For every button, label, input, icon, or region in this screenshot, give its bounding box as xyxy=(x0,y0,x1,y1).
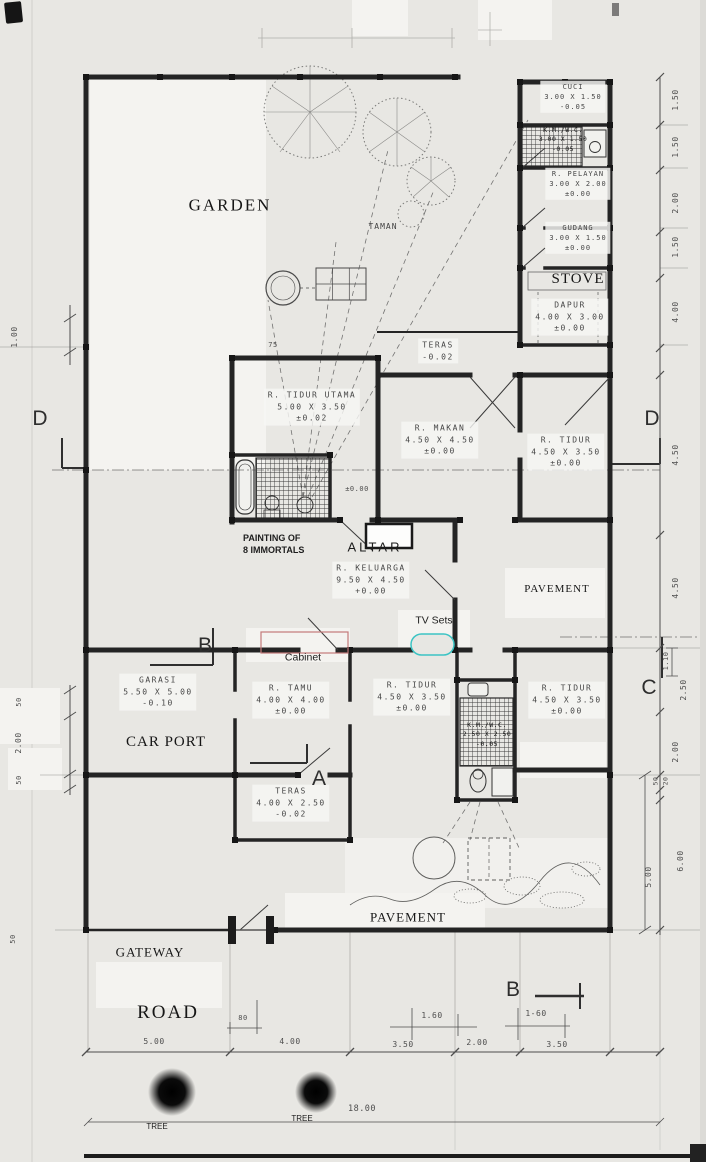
room-label-cuci: CUCI 3.00 X 1.50 -0.05 xyxy=(540,81,605,113)
dim-left-50-b: 50 xyxy=(14,775,24,784)
floor-plan-scan: CUCI 3.00 X 1.50 -0.05 K.M./W.C. 3.00 X … xyxy=(0,0,706,1162)
cabinet-label: Cabinet xyxy=(285,650,321,665)
dim-right-1-10: 1.10 xyxy=(661,652,671,671)
room-size: 5.00 X 3.50 xyxy=(268,401,356,413)
taman-label: TAMAN xyxy=(368,221,397,233)
dim-bottom-2-00: 2.00 xyxy=(466,1037,487,1049)
room-name: R. TAMU xyxy=(256,683,325,695)
dim-75: 75 xyxy=(268,340,277,350)
room-level: ±0.02 xyxy=(268,413,356,425)
room-label-tidur-right: R. TIDUR 4.50 X 3.50 ±0.00 xyxy=(527,434,604,471)
dim-right-2-50: 2.50 xyxy=(678,679,690,700)
dim-right-7: 4.50 xyxy=(670,577,682,598)
dim-bottom-5-00: 5.00 xyxy=(143,1036,164,1048)
pavement-right-label: PAVEMENT xyxy=(524,582,589,598)
room-name: R. TIDUR xyxy=(377,680,446,692)
dim-right-6: 4.50 xyxy=(670,444,682,465)
room-level: ±0.00 xyxy=(531,458,600,470)
room-label-tidur-utama: R. TIDUR UTAMA 5.00 X 3.50 ±0.02 xyxy=(264,389,360,426)
tree-blob-right xyxy=(295,1071,337,1113)
room-name: TERAS xyxy=(422,339,454,351)
section-marker-a-bottom: A xyxy=(312,764,326,794)
tree-blob-left xyxy=(148,1068,196,1116)
room-label-pelayan: R. PELAYAN 3.00 X 2.00 ±0.00 xyxy=(545,168,610,200)
room-size: 4.50 X 4.50 xyxy=(405,434,474,446)
room-size: 4.00 X 2.50 xyxy=(256,797,325,809)
dim-right-5: 4.00 xyxy=(670,301,682,322)
room-level: ±0.00 xyxy=(405,446,474,458)
dim-bottom-3-50-b: 3.50 xyxy=(546,1039,567,1051)
room-name: GUDANG xyxy=(549,223,606,233)
room-size: 4.00 X 3.00 xyxy=(535,311,604,323)
room-level: -0.05 xyxy=(544,102,601,112)
dim-bottom-3-50-a: 3.50 xyxy=(392,1039,413,1051)
room-size: 2.50 X 2.50 xyxy=(463,730,512,739)
room-size: 3.00 X 1.50 xyxy=(549,233,606,243)
dim-right-4: 1.50 xyxy=(670,236,682,257)
dim-bottom-1-60-b: 1-60 xyxy=(525,1008,546,1020)
section-marker-c-right: C xyxy=(641,673,656,703)
dim-right-2-00: 2.00 xyxy=(670,741,682,762)
pavement-bottom-label: PAVEMENT xyxy=(370,909,446,928)
room-name: K.M./W.C. xyxy=(463,721,512,730)
room-label-tidur-mid: R. TIDUR 4.50 X 3.50 ±0.00 xyxy=(373,679,450,716)
room-label-kmwc-top: K.M./W.C. 3.00 X 1.50 -0.05 xyxy=(535,125,592,155)
room-size: 5.50 X 5.00 xyxy=(123,686,192,698)
room-label-tamu: R. TAMU 4.00 X 4.00 ±0.00 xyxy=(252,682,329,719)
room-level: -0.10 xyxy=(123,698,192,710)
gateway-label: GATEWAY xyxy=(116,944,185,963)
painting-line1: PAINTING OF xyxy=(243,532,304,544)
room-level: -0.02 xyxy=(422,351,454,363)
section-marker-b-bottom: B xyxy=(506,975,520,1005)
room-name: R. TIDUR xyxy=(531,435,600,447)
room-label-makan: R. MAKAN 4.50 X 4.50 ±0.00 xyxy=(401,422,478,459)
room-level: -0.02 xyxy=(256,809,325,821)
room-label-dapur: DAPUR 4.00 X 3.00 ±0.00 xyxy=(531,299,608,336)
room-size: 4.50 X 3.50 xyxy=(532,694,601,706)
room-level: ±0.00 xyxy=(549,189,606,199)
tv-sets-label: TV Sets xyxy=(415,613,452,628)
dim-right-2: 1.50 xyxy=(670,136,682,157)
section-marker-b-left: B xyxy=(198,631,212,661)
painting-label: PAINTING OF 8 IMMORTALS xyxy=(243,532,304,556)
room-level: -0.05 xyxy=(463,740,512,749)
room-label-gudang: GUDANG 3.00 X 1.50 ±0.00 xyxy=(545,222,610,254)
dim-right-1: 1.50 xyxy=(670,89,682,110)
room-name: DAPUR xyxy=(535,300,604,312)
room-level: ±0.00 xyxy=(535,323,604,335)
dim-left-50-a: 50 xyxy=(14,697,24,706)
dim-right-5-00: 5.00 xyxy=(643,866,655,887)
room-size: 3.00 X 1.50 xyxy=(544,92,601,102)
room-name: R. TIDUR xyxy=(532,683,601,695)
section-marker-d-left: D xyxy=(32,404,47,434)
room-label-garasi: GARASI 5.50 X 5.00 -0.10 xyxy=(119,674,196,711)
dim-right-3: 2.00 xyxy=(670,192,682,213)
car-port-label: CAR PORT xyxy=(126,732,206,754)
dim-bottom-1-60-a: 1.60 xyxy=(421,1010,442,1022)
dim-left-50-c: 50 xyxy=(8,934,18,943)
room-level: ±0.00 xyxy=(549,243,606,253)
room-size: 4.00 X 4.00 xyxy=(256,694,325,706)
room-label-tidur-bottom-right: R. TIDUR 4.50 X 3.50 ±0.00 xyxy=(528,682,605,719)
painting-line2: 8 IMMORTALS xyxy=(243,544,304,556)
dim-bath-level: ±0.00 xyxy=(345,484,369,494)
altar-label: ALTAR xyxy=(348,539,403,558)
dim-right-6-00: 6.00 xyxy=(675,850,687,871)
room-size: 4.50 X 3.50 xyxy=(377,691,446,703)
tv-sets-box xyxy=(411,634,454,655)
room-size: 4.50 X 3.50 xyxy=(531,446,600,458)
room-level: +0.00 xyxy=(336,586,405,598)
room-name: R. KELUARGA xyxy=(336,563,405,575)
room-name: R. PELAYAN xyxy=(549,169,606,179)
section-marker-d-right: D xyxy=(644,404,659,434)
room-level: ±0.00 xyxy=(532,706,601,718)
room-level: -0.05 xyxy=(539,145,588,154)
garden-label: GARDEN xyxy=(189,194,272,219)
room-name: K.M./W.C. xyxy=(539,126,588,135)
garden-trees xyxy=(264,66,455,227)
room-label-kmwc-mid: K.M./W.C. 2.50 X 2.50 -0.05 xyxy=(459,720,516,750)
room-name: CUCI xyxy=(544,82,601,92)
dim-left-2-00: 2.00 xyxy=(13,732,25,753)
room-size: 3.00 X 1.50 xyxy=(539,135,588,144)
room-name: R. TIDUR UTAMA xyxy=(268,390,356,402)
room-name: GARASI xyxy=(123,675,192,687)
dim-bottom-80: 80 xyxy=(238,1013,247,1023)
room-level: ±0.00 xyxy=(377,703,446,715)
tree-right-label: TREE xyxy=(291,1113,312,1125)
dim-total-18: 18.00 xyxy=(348,1103,376,1115)
room-label-teras-top: TERAS -0.02 xyxy=(418,338,458,363)
dim-right-20: 20 xyxy=(661,777,670,786)
dim-right-50: 50 xyxy=(651,777,660,786)
pond-and-stepping-stones xyxy=(266,268,366,305)
dim-left-1-00: 1.00 xyxy=(9,326,21,347)
room-label-keluarga: R. KELUARGA 9.50 X 4.50 +0.00 xyxy=(332,562,409,599)
dim-bottom-4-00: 4.00 xyxy=(279,1036,300,1048)
room-name: R. MAKAN xyxy=(405,423,474,435)
room-level: ±0.00 xyxy=(256,706,325,718)
stove-label: STOVE xyxy=(551,269,604,291)
road-label: ROAD xyxy=(137,999,199,1027)
room-size: 9.50 X 4.50 xyxy=(336,574,405,586)
tree-left-label: TREE xyxy=(146,1121,167,1133)
room-size: 3.00 X 2.00 xyxy=(549,179,606,189)
